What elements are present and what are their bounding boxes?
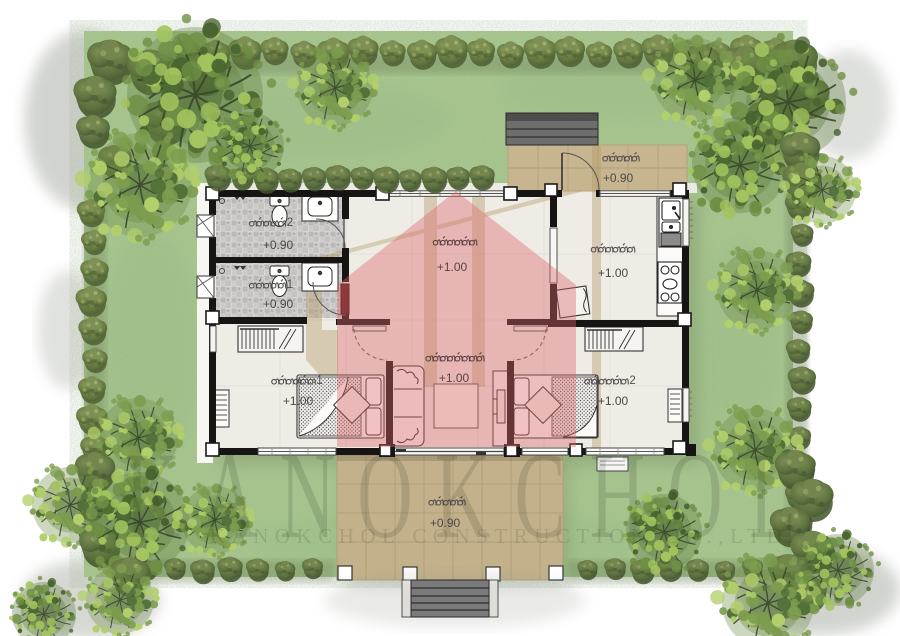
svg-text:+1.00: +1.00 [439,371,470,385]
svg-text:+0.90: +0.90 [603,171,634,185]
svg-text:+0.90: +0.90 [263,297,294,311]
svg-text:KANOKCHOL CONSTRUCTION CO.,LTD: KANOKCHOL CONSTRUCTION CO.,LTD. [210,524,800,548]
svg-text:+1.00: +1.00 [437,260,468,274]
svg-text:K: K [125,428,181,565]
svg-text:1: 1 [316,375,322,387]
svg-text:+1.00: +1.00 [598,394,629,408]
svg-text:+1.00: +1.00 [283,394,314,408]
svg-text:+0.90: +0.90 [263,238,294,252]
svg-text:1: 1 [287,279,293,291]
svg-text:2: 2 [287,217,293,229]
svg-text:2: 2 [629,375,635,387]
svg-text:+1.00: +1.00 [598,266,629,280]
